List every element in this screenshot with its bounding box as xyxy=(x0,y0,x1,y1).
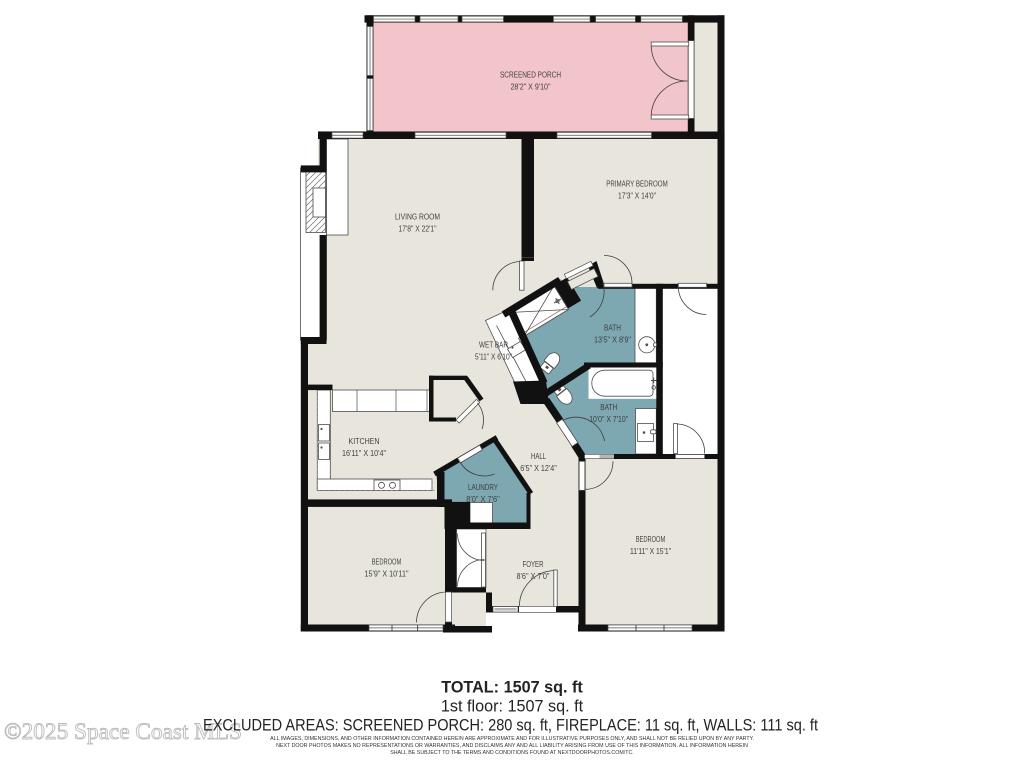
svg-text:11'11" X 15'1": 11'11" X 15'1" xyxy=(630,547,671,556)
svg-text:10'0" X 7'10": 10'0" X 7'10" xyxy=(589,415,628,424)
svg-text:6'5" X 12'4": 6'5" X 12'4" xyxy=(520,464,557,473)
svg-text:8'6" X 7'0": 8'6" X 7'0" xyxy=(517,572,550,581)
svg-text:BEDROOM: BEDROOM xyxy=(372,557,402,567)
svg-text:15'9" X 10'11": 15'9" X 10'11" xyxy=(365,570,409,579)
svg-text:1st floor: 1507 sq. ft: 1st floor: 1507 sq. ft xyxy=(441,698,584,716)
svg-text:SHALL BE SUBJECT TO THE TERMS: SHALL BE SUBJECT TO THE TERMS AND CONDIT… xyxy=(390,750,634,756)
svg-text:ALL IMAGES, DIMENSIONS, AND OT: ALL IMAGES, DIMENSIONS, AND OTHER INFORM… xyxy=(270,736,754,742)
svg-text:LAUNDRY: LAUNDRY xyxy=(468,482,498,492)
svg-text:8'0" X 7'6": 8'0" X 7'6" xyxy=(466,495,500,504)
svg-text:17'8" X 22'1": 17'8" X 22'1" xyxy=(399,225,437,234)
svg-text:HALL: HALL xyxy=(531,451,546,461)
svg-text:16'11" X 10'4": 16'11" X 10'4" xyxy=(342,449,386,458)
svg-text:EXCLUDED AREAS: SCREENED PORCH: EXCLUDED AREAS: SCREENED PORCH: 280 sq. … xyxy=(203,717,818,735)
svg-text:TOTAL: 1507 sq. ft: TOTAL: 1507 sq. ft xyxy=(441,679,583,697)
svg-text:5'11" X 6'10": 5'11" X 6'10" xyxy=(475,353,512,362)
svg-text:28'2" X 9'10": 28'2" X 9'10" xyxy=(511,83,551,92)
svg-text:17'3" X 14'0": 17'3" X 14'0" xyxy=(618,192,656,201)
svg-text:KITCHEN: KITCHEN xyxy=(349,436,380,446)
svg-text:PRIMARY BEDROOM: PRIMARY BEDROOM xyxy=(606,179,668,189)
svg-text:FOYER: FOYER xyxy=(523,559,544,569)
svg-text:NEXT DOOR PHOTOS MAKES NO REPR: NEXT DOOR PHOTOS MAKES NO REPRESENTATION… xyxy=(276,743,748,749)
svg-text:SCREENED PORCH: SCREENED PORCH xyxy=(500,70,561,80)
svg-text:13'5" X 8'9": 13'5" X 8'9" xyxy=(594,336,631,345)
svg-text:BEDROOM: BEDROOM xyxy=(636,534,666,544)
svg-text:BATH: BATH xyxy=(600,402,617,412)
svg-text:WET BAR: WET BAR xyxy=(479,340,508,350)
svg-text:LIVING ROOM: LIVING ROOM xyxy=(395,212,440,222)
svg-text:BATH: BATH xyxy=(604,323,621,333)
